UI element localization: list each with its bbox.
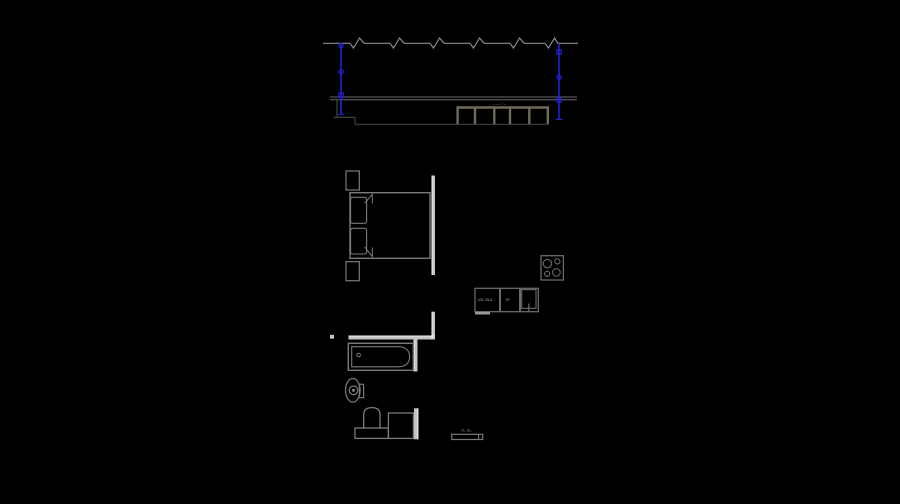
burner-back-right — [553, 269, 561, 277]
walls — [330, 176, 435, 440]
washing-machine — [388, 413, 413, 438]
pedestal-sink — [364, 408, 380, 428]
vanity-area — [355, 408, 413, 439]
blanket-fold-bottom — [365, 247, 373, 257]
cooktop — [541, 256, 563, 280]
bathtub-inner — [352, 347, 410, 367]
burner-front-right — [555, 259, 560, 264]
bed — [350, 193, 430, 259]
blanket-fold-top — [365, 194, 373, 203]
vanity-counter — [355, 428, 388, 438]
cad-canvas[interactable]: ╌╌╌┆╌ — [0, 0, 900, 504]
burner-front-left — [543, 259, 551, 267]
burner-back-left — [545, 271, 550, 276]
toilet-center-dot — [353, 389, 355, 391]
wall-highlight-edges — [349, 176, 436, 440]
section-double-line — [330, 97, 577, 100]
radiator-label: st.dv. — [461, 428, 472, 433]
wall-stub-left — [330, 335, 334, 339]
nightstand-top — [346, 171, 359, 190]
cad-drawing-stage: ╌╌╌┆╌ — [0, 0, 900, 504]
counter-left-label: LED.SALD. — [478, 298, 494, 302]
toilet — [346, 379, 364, 403]
floor-plan-view: LED.SALD. TM st.dv. — [330, 171, 563, 440]
counter-mid-label: TM — [506, 298, 511, 302]
pillow-bottom — [351, 228, 367, 254]
nightstand-bottom — [346, 262, 359, 281]
dimension-line-right — [556, 44, 563, 120]
floor-step-lines — [334, 100, 550, 124]
dimension-line-left — [338, 43, 344, 114]
elevation-view: ╌╌╌┆╌ — [323, 38, 578, 124]
cabinet-row — [457, 106, 550, 124]
radiator-outline — [452, 434, 483, 439]
cabinet-marks-label: ╌╌╌┆╌ — [493, 103, 507, 109]
bathtub — [348, 343, 413, 370]
radiator — [452, 434, 483, 439]
pillow-top — [351, 197, 367, 223]
bathtub-drain — [357, 353, 361, 357]
cooktop-outline — [541, 256, 563, 280]
break-line — [323, 38, 578, 48]
counter-wall-bar — [475, 312, 490, 315]
bed-outline — [350, 193, 430, 259]
